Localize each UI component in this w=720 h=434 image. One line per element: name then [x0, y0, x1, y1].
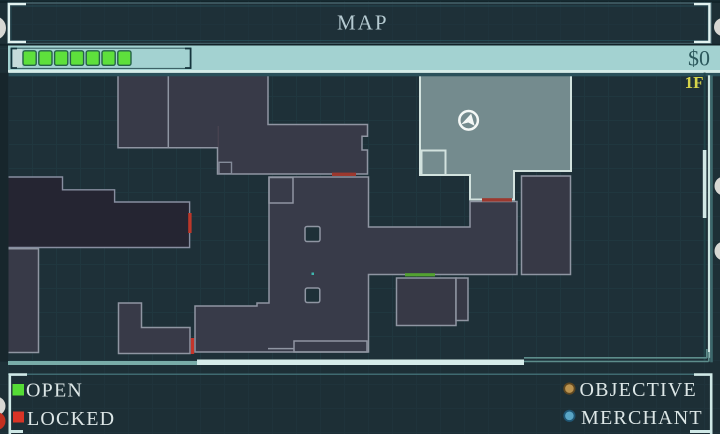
svg-text:OBJECTIVE: OBJECTIVE — [580, 379, 697, 401]
svg-text:MAP: MAP — [337, 11, 389, 35]
svg-text:$0: $0 — [688, 46, 710, 71]
svg-text:LOCKED: LOCKED — [27, 408, 115, 430]
svg-text:MERCHANT: MERCHANT — [581, 407, 703, 429]
svg-text:1F: 1F — [685, 73, 704, 92]
svg-text:OPEN: OPEN — [26, 380, 83, 402]
